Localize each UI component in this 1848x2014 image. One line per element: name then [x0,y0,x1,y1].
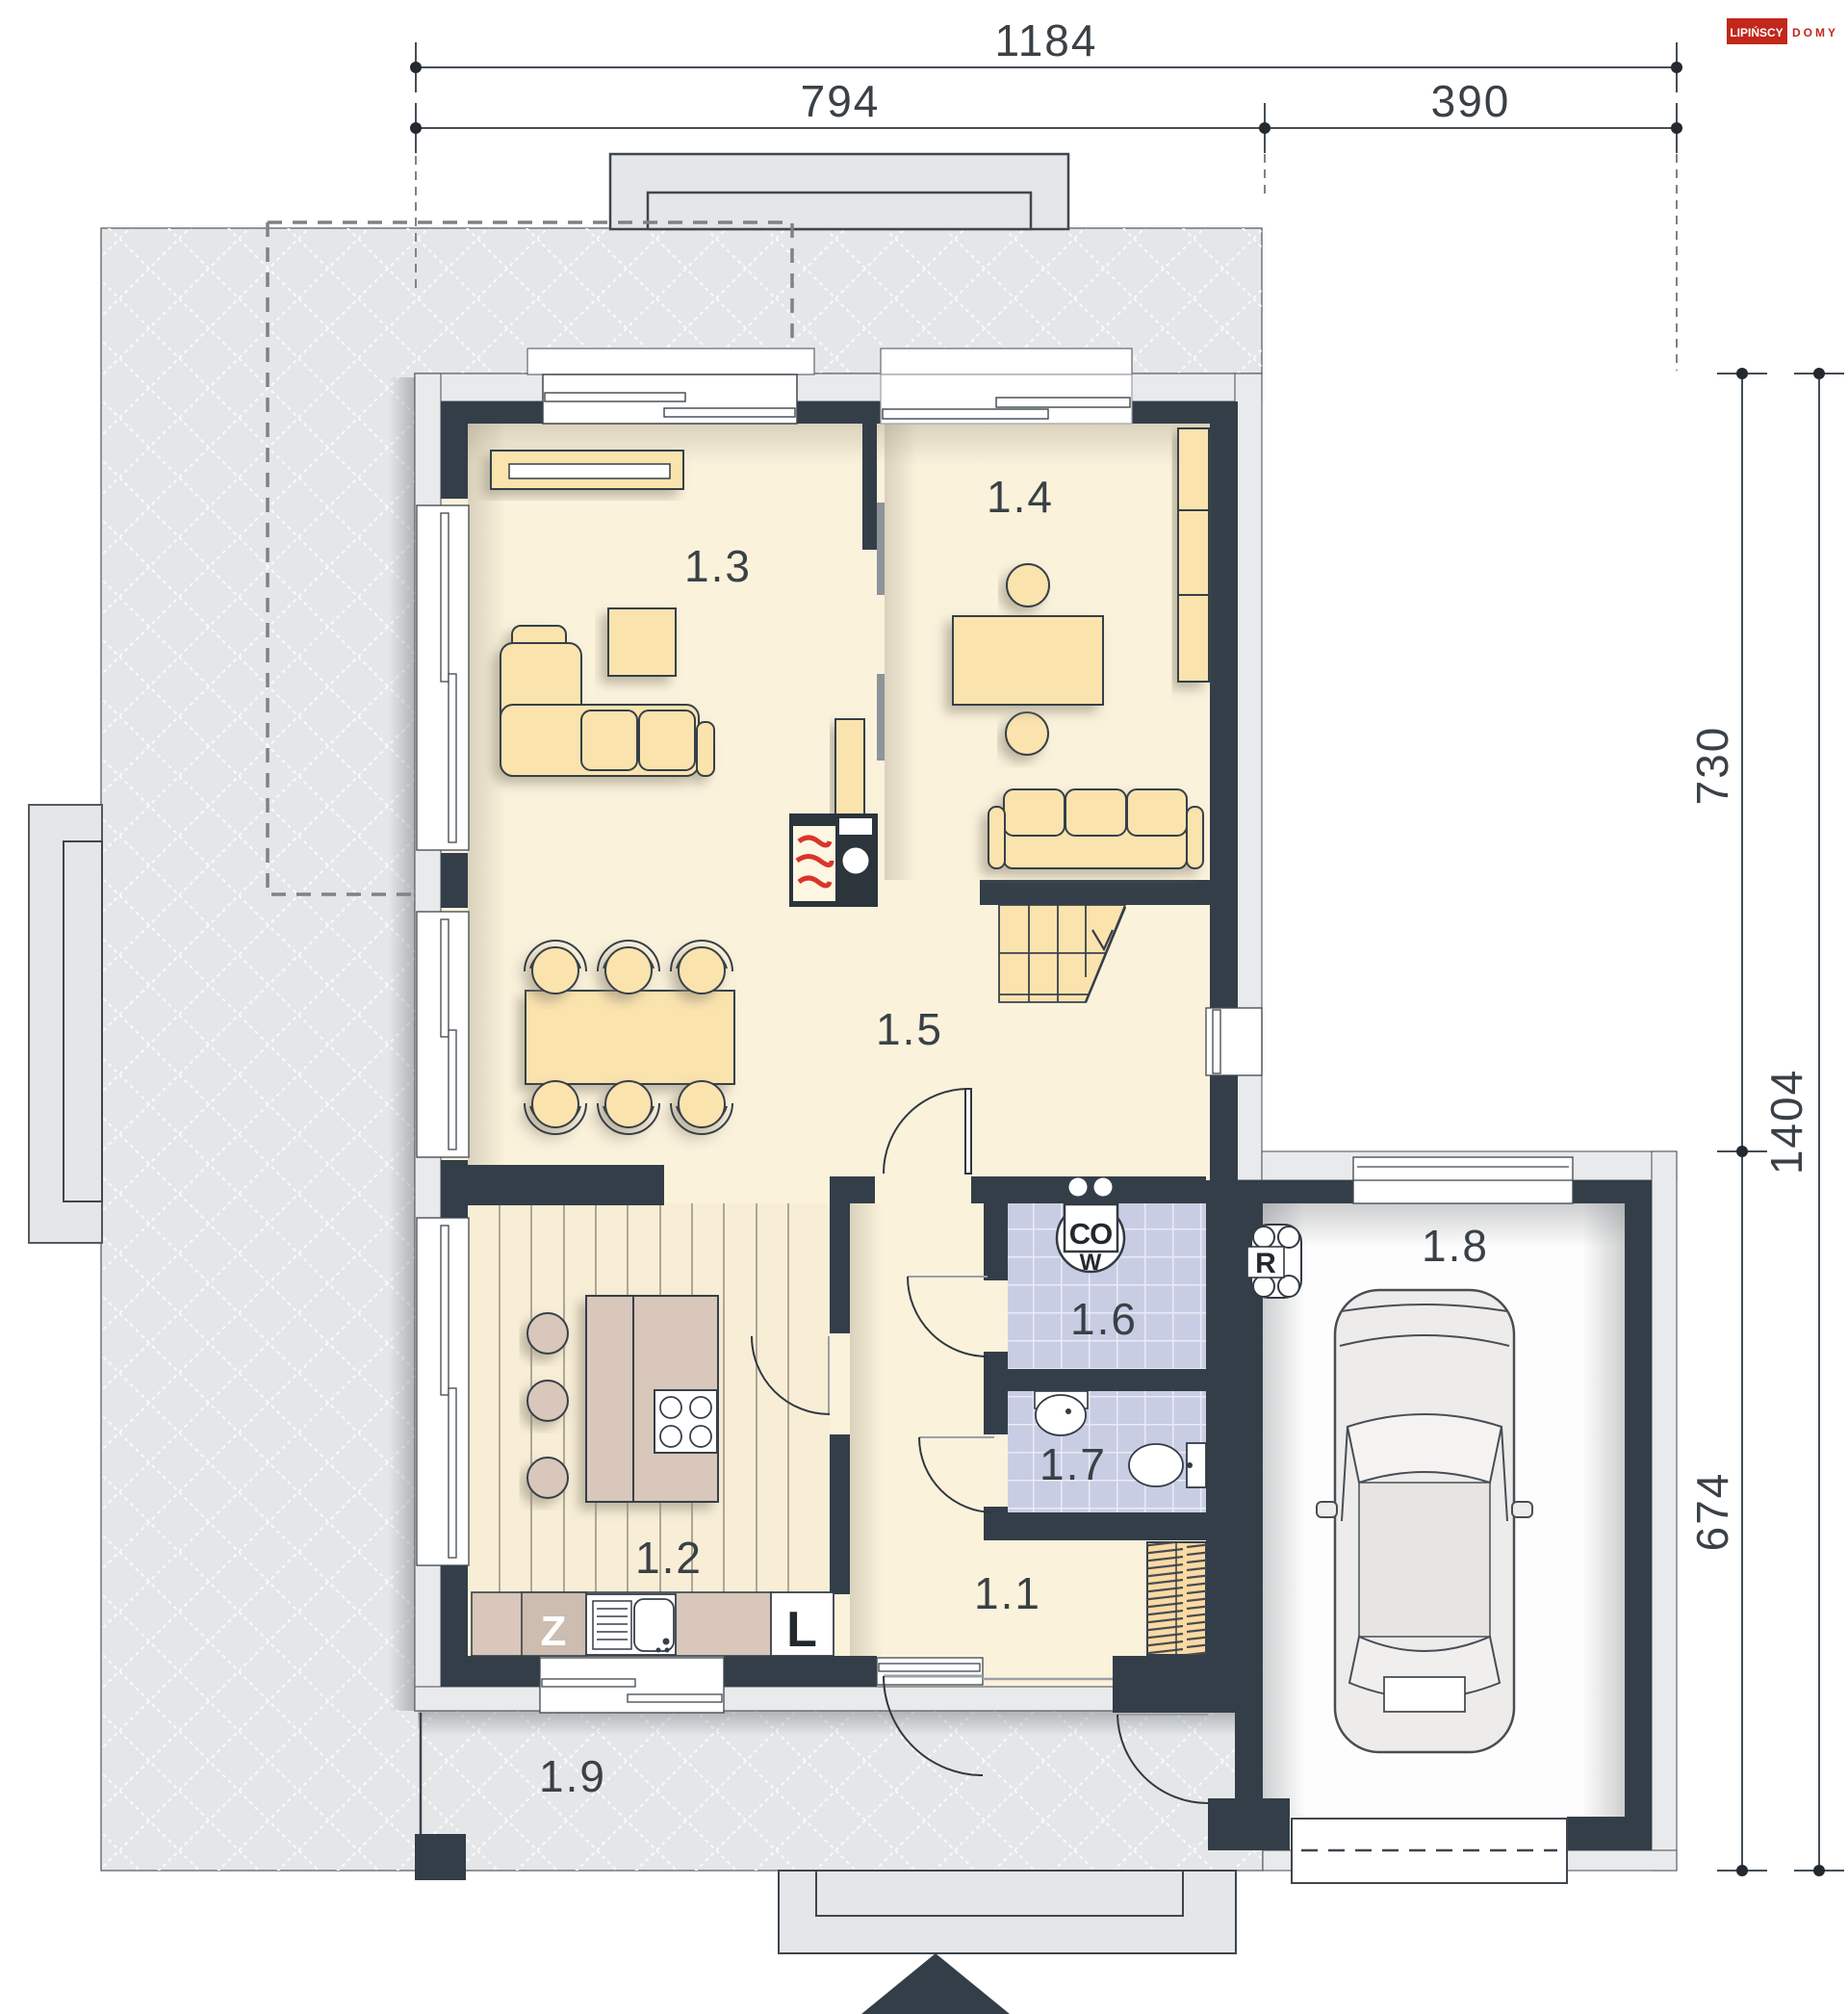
svg-text:1.3: 1.3 [684,541,752,591]
svg-text:1.9: 1.9 [539,1751,606,1801]
svg-text:1404: 1404 [1761,1069,1811,1175]
svg-text:390: 390 [1431,76,1511,126]
svg-text:LIPIŃSCY: LIPIŃSCY [1730,25,1783,39]
svg-text:674: 674 [1687,1472,1737,1552]
svg-text:1.2: 1.2 [635,1533,703,1583]
svg-text:1.5: 1.5 [876,1004,943,1054]
svg-text:W: W [1080,1250,1102,1276]
svg-text:1.6: 1.6 [1070,1294,1138,1344]
svg-text:1.8: 1.8 [1422,1221,1489,1271]
svg-text:1.1: 1.1 [974,1568,1041,1618]
svg-text:Z: Z [541,1608,567,1655]
svg-text:DOMY: DOMY [1792,26,1838,39]
svg-text:1.7: 1.7 [1039,1439,1107,1489]
svg-text:1184: 1184 [995,15,1098,65]
svg-text:CO: CO [1069,1217,1113,1251]
svg-text:730: 730 [1687,726,1737,806]
svg-text:R: R [1255,1248,1276,1279]
svg-text:1.4: 1.4 [987,472,1054,522]
svg-text:L: L [786,1602,817,1658]
svg-text:794: 794 [801,76,881,126]
